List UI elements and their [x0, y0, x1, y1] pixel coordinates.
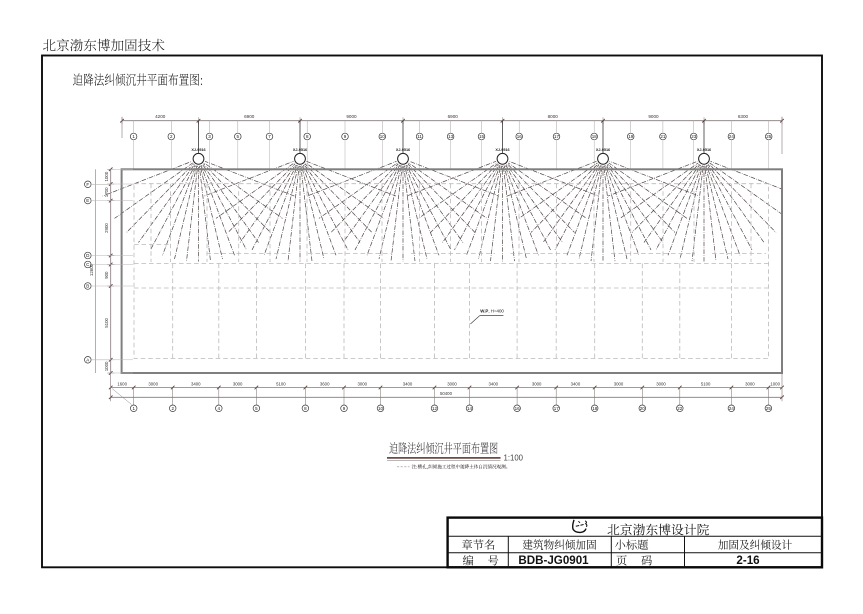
svg-text:A: A [86, 357, 89, 362]
svg-text:8000: 8000 [548, 114, 559, 119]
svg-text:3400: 3400 [489, 381, 499, 386]
svg-text:3400: 3400 [191, 381, 201, 386]
svg-text:13: 13 [448, 134, 454, 139]
svg-text:B: B [86, 284, 89, 289]
svg-text:9000: 9000 [648, 114, 659, 119]
svg-text:6300: 6300 [738, 114, 749, 119]
svg-text:17: 17 [554, 134, 560, 139]
svg-text:F: F [86, 182, 89, 187]
svg-text:3600: 3600 [320, 381, 330, 386]
svg-text:1:100: 1:100 [504, 454, 524, 463]
svg-text:19: 19 [628, 134, 634, 139]
svg-text:3000: 3000 [532, 381, 542, 386]
svg-text:3000: 3000 [357, 381, 367, 386]
svg-text:4200: 4200 [155, 114, 166, 119]
svg-text:16: 16 [517, 134, 523, 139]
svg-text:3400: 3400 [403, 381, 413, 386]
svg-text:11: 11 [417, 134, 422, 139]
svg-text:18: 18 [592, 406, 598, 411]
svg-text:XJ-9516: XJ-9516 [495, 148, 509, 152]
svg-text:1000: 1000 [104, 171, 109, 181]
svg-text:25: 25 [766, 134, 772, 139]
svg-text:22: 22 [677, 406, 683, 411]
svg-text:XJ-9516: XJ-9516 [293, 148, 307, 152]
svg-text:2900: 2900 [104, 223, 109, 233]
svg-text:5100: 5100 [104, 317, 109, 327]
svg-text:2-16: 2-16 [736, 554, 760, 567]
svg-text:15: 15 [479, 134, 485, 139]
svg-text:W.P, H=400: W.P, H=400 [480, 308, 504, 313]
svg-text:6900: 6900 [448, 114, 459, 119]
svg-text:14: 14 [467, 406, 473, 411]
svg-text:3000: 3000 [745, 381, 755, 386]
svg-text:3000: 3000 [447, 381, 457, 386]
svg-text:12600: 12600 [89, 263, 94, 276]
svg-text:XJ-9516: XJ-9516 [697, 148, 711, 152]
svg-text:24: 24 [729, 134, 735, 139]
svg-text:17: 17 [554, 406, 560, 411]
svg-text:5100: 5100 [701, 381, 711, 386]
svg-text:1600: 1600 [117, 381, 127, 386]
svg-text:50400: 50400 [440, 391, 453, 396]
svg-text:XJ-9516: XJ-9516 [396, 148, 410, 152]
svg-text:1000: 1000 [770, 381, 780, 386]
svg-text:XJ-9516: XJ-9516 [191, 148, 205, 152]
svg-text:XJ-9516: XJ-9516 [596, 148, 610, 152]
svg-text:12: 12 [432, 406, 438, 411]
svg-text:20: 20 [640, 406, 646, 411]
svg-text:900: 900 [104, 271, 109, 279]
svg-text:3000: 3000 [148, 381, 158, 386]
svg-text:25: 25 [766, 406, 772, 411]
svg-text:6900: 6900 [244, 114, 255, 119]
svg-text:21: 21 [660, 134, 666, 139]
svg-text:E: E [86, 198, 89, 203]
svg-text:1000: 1000 [104, 361, 109, 371]
svg-text:16: 16 [515, 406, 521, 411]
svg-text:18: 18 [592, 134, 598, 139]
svg-text:3000: 3000 [614, 381, 624, 386]
svg-text:3000: 3000 [233, 381, 243, 386]
svg-text:10: 10 [380, 134, 386, 139]
svg-text:23: 23 [691, 134, 697, 139]
svg-text:5100: 5100 [276, 381, 286, 386]
svg-text:9000: 9000 [346, 114, 357, 119]
svg-text:3400: 3400 [571, 381, 581, 386]
svg-text:1700: 1700 [104, 187, 109, 197]
svg-text:24: 24 [729, 406, 735, 411]
svg-text:3000: 3000 [656, 381, 666, 386]
svg-text:BDB-JG0901: BDB-JG0901 [518, 554, 589, 567]
svg-text:10: 10 [378, 406, 384, 411]
